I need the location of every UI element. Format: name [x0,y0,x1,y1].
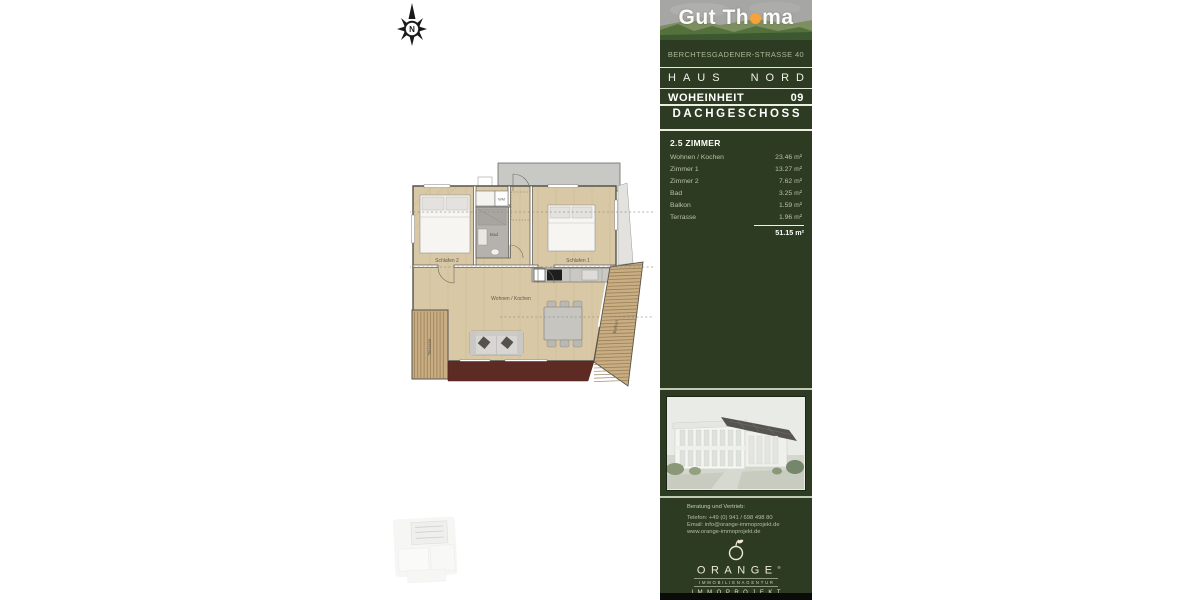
house-right: NORD [751,72,811,84]
unit-number: 09 [791,92,804,104]
orange-fruit-icon [726,538,746,561]
sofa [470,331,523,355]
room-row: Bad 3.25 m² [670,190,802,197]
street-address: BERCHTESGADENER-STRASSE 40 [660,50,812,59]
total-divider [754,225,804,226]
room-value: 1.96 m² [779,214,802,221]
wohnen-kochen-label: Wohnen / Kochen [491,296,531,302]
floor-label: DACHGESCHOSS [660,108,812,120]
bottom-black-bar [660,593,812,600]
unit-row: WOHEINHEIT 09 [660,92,812,104]
room-row: Zimmer 2 7.62 m² [670,178,802,185]
room-value: 13.27 m² [775,166,802,173]
divider [660,104,812,106]
project-logo: Gut Thma [660,6,812,30]
expose-page: N [0,0,1200,600]
dining-table [544,301,582,347]
unit-label: WOHEINHEIT [668,92,744,104]
room-label: Balkon [670,202,691,209]
terrace: Terrasse [412,310,448,379]
room-label: Wohnen / Kochen [670,154,724,161]
divider [660,496,812,498]
kitchen-counter [532,268,611,282]
room-value: 3.25 m² [779,190,802,197]
room-row: Balkon 1.59 m² [670,202,802,209]
contact-phone: Telefon: +49 (0) 941 / 698 498 80 [687,515,807,522]
logo-name-end: ma [762,6,793,29]
schlafen2-label: Schlafen 2 [435,258,459,264]
bad-label: Bad [490,232,499,237]
agency-name: ORANGE® [660,562,812,577]
room-value: 23.46 m² [775,154,802,161]
logo-name-start: Gut Th [678,6,749,29]
house-left: HAUS [668,72,727,84]
schlafen1-label: Schlafen 1 [566,258,590,264]
room-value: 7.62 m² [779,178,802,185]
contact-website: www.orange-immoprojekt.de [687,529,807,536]
room-row: Terrasse 1.96 m² [670,214,802,221]
terrasse-label: Terrasse [427,338,432,355]
room-row: Wohnen / Kochen 23.46 m² [670,154,802,161]
room-value: 1.59 m² [779,202,802,209]
floorplan-drawing: WM Bad [410,155,660,395]
divider [660,388,812,390]
room-label: Bad [670,190,682,197]
room-label: Terrasse [670,214,696,221]
agency-logo-block: ORANGE® IMMOBILIENAGENTUR IMMOPROJEKT [660,538,812,596]
contact-block: Beratung und Vertrieb: Telefon: +49 (0) … [687,504,807,536]
divider [660,67,812,68]
rooms-title: 2.5 ZIMMER [670,138,721,148]
contact-heading: Beratung und Vertrieb: [687,504,807,511]
total-area: 51.15 m² [670,228,804,237]
room-row: Zimmer 1 13.27 m² [670,166,802,173]
agency-subtitle: IMMOBILIENAGENTUR [694,578,778,587]
building-render [666,396,806,491]
entry-zone [511,192,530,220]
room-label: Zimmer 2 [670,178,699,185]
building-render-image [667,397,804,489]
compass-icon: N [391,2,433,52]
compass-north-label: N [409,25,415,34]
divider [660,129,812,131]
agency-name-text: ORANGE [697,565,778,577]
house-name-row: HAUS NORD [660,72,812,84]
registered-mark: ® [778,565,781,570]
divider [660,88,812,89]
wm-label: WM [498,198,505,202]
faded-miniplan [372,500,477,590]
bed-schlafen2 [420,195,470,253]
logo-orange-dot-icon [750,13,761,24]
roof-strip [448,362,594,382]
side-panel: Gut Thma BERCHTESGADENER-STRASSE 40 HAUS… [660,0,812,600]
contact-email: Email: info@orange-immoprojekt.de [687,522,807,529]
room-label: Zimmer 1 [670,166,699,173]
